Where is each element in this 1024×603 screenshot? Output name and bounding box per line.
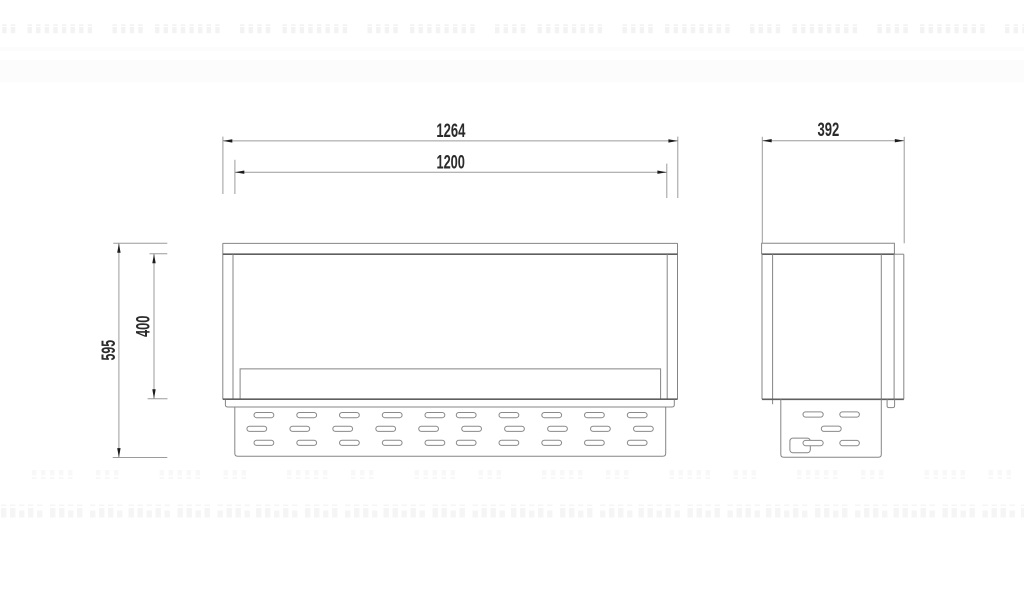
svg-text:400: 400 (134, 316, 155, 337)
svg-text:1264: 1264 (436, 121, 465, 142)
svg-text:595: 595 (99, 340, 120, 361)
svg-text:1200: 1200 (436, 152, 465, 173)
svg-text:392: 392 (818, 120, 840, 141)
